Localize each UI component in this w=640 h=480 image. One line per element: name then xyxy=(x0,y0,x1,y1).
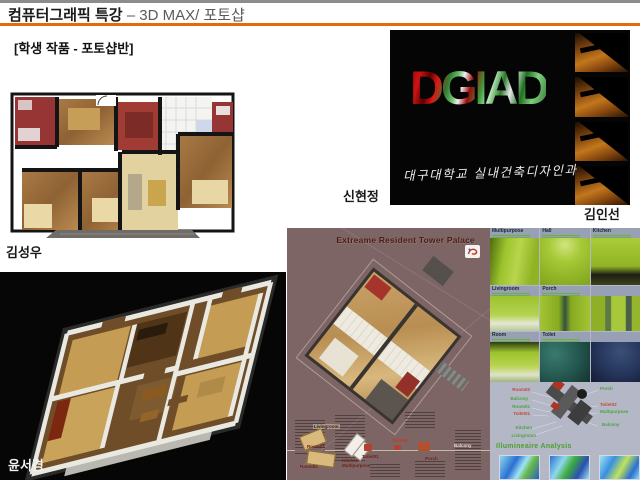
board-cell-toilet2 xyxy=(591,332,640,382)
poster-paragraph xyxy=(370,464,400,478)
interior-photo xyxy=(591,238,640,285)
cell-label: Toilet xyxy=(542,333,589,338)
resident-tower-poster: Extreame Resident Tower Palace Living xyxy=(287,228,490,480)
interior-photo xyxy=(540,342,589,382)
cell-label: Porch xyxy=(542,287,589,292)
lighting-analysis-thumb xyxy=(499,455,540,480)
plan-red-room xyxy=(364,274,391,300)
slide: 컴퓨터그래픽 특강 – 3D MAX/ 포토샵 [학생 작품 - 포토샵반] xyxy=(0,0,640,480)
board-cell-livingroom: Livingroom xyxy=(490,286,539,331)
board-cell-porch: Porch xyxy=(540,286,589,331)
cell-label: Kitchen xyxy=(593,229,640,234)
callout-toilet01: Toilet01 xyxy=(362,454,379,459)
callout-livingroom: Livingroom xyxy=(313,424,340,429)
interior-photo xyxy=(540,296,589,331)
floorplan-2d-image xyxy=(10,88,236,238)
interior-photo xyxy=(540,238,589,285)
dgiad-artwork: DGIAD 대구대학교 실내건축디자인과 xyxy=(390,30,630,205)
rotated-floorplan xyxy=(304,267,461,424)
poster-paragraph xyxy=(415,461,445,477)
poster-title: Extreame Resident Tower Palace xyxy=(336,235,475,245)
green-interior-board: Multipurpose Hall Kitchen Livingroom Por… xyxy=(490,228,640,480)
cell-label: Hall xyxy=(542,229,589,234)
diagram-label-room02: Room02 xyxy=(512,387,530,392)
diagram-label-balcony-l: Balcony xyxy=(510,396,528,401)
interior-photo xyxy=(490,342,539,382)
lighting-analysis-thumb xyxy=(549,455,590,480)
diagram-label-toilet02: Toilet02 xyxy=(600,402,617,407)
plan-tile-room xyxy=(319,338,359,377)
student-name-shinhyunjung: 신현정 xyxy=(343,186,379,205)
slide-title-bold: 컴퓨터그래픽 특강 xyxy=(8,7,123,24)
axonometric-diagram: Room02 Balcony Room01 Toilet01 Kitchen L… xyxy=(490,382,640,442)
iso-floorplan-drawing xyxy=(0,272,286,480)
floorplan-2d-drawing xyxy=(10,88,236,238)
student-name-kimsungwoo: 김성우 xyxy=(6,242,42,261)
slide-subtitle: [학생 작품 - 포토샵반] xyxy=(14,38,134,57)
slide-title-rest: – 3D MAX/ 포토샵 xyxy=(127,7,245,24)
callout-toilet02: Toilet02 xyxy=(392,438,409,443)
callout-porch: Porch xyxy=(425,456,438,461)
furniture-toilet-icon xyxy=(364,444,372,451)
callout-multipurpose: Multipurpose xyxy=(342,463,370,468)
diagram-label-room01: Room01 xyxy=(512,404,530,409)
board-cell-toilet: Toilet xyxy=(540,332,589,382)
diagram-label-balcony-r: Balcony xyxy=(602,422,620,427)
callout-balcony: Balcony xyxy=(454,443,472,448)
filmstrip-frame xyxy=(575,33,628,72)
accent-rule xyxy=(0,23,640,26)
interior-photo xyxy=(591,296,640,331)
poster-paragraph xyxy=(405,412,435,430)
board-cell-kitchen: Kitchen xyxy=(591,228,640,285)
lighting-analysis-thumb xyxy=(599,455,640,480)
callout-room02: Room02 xyxy=(300,464,318,469)
diagram-label-porch: Porch xyxy=(600,386,613,391)
student-name-kiminsun: 김인선 xyxy=(584,204,620,223)
filmstrip-column xyxy=(575,30,628,205)
interior-photo xyxy=(490,238,539,285)
analysis-title: Illumineaire Analysis xyxy=(496,443,572,450)
cell-label: Livingroom xyxy=(492,287,539,292)
diagram-label-kitchen: Kitchen xyxy=(515,425,532,430)
board-cell-hall: Hall xyxy=(540,228,589,285)
diagram-label-multipurpose: Multipurpose xyxy=(600,409,628,414)
poster-logo-icon xyxy=(465,245,480,258)
cell-label: Multipurpose xyxy=(492,229,539,234)
board-cell-multipurpose: Multipurpose xyxy=(490,228,539,285)
analysis-thumbnails xyxy=(490,455,640,480)
dgiad-caption: 대구대학교 실내건축디자인과 xyxy=(403,159,594,185)
poster-paragraph xyxy=(455,430,481,470)
interior-photo xyxy=(490,296,539,331)
filmstrip-frame xyxy=(575,122,628,161)
diagram-label-toilet01: Toilet01 xyxy=(513,411,530,416)
callout-room01: Room01 xyxy=(307,444,325,449)
furniture-porch-icon xyxy=(418,442,430,451)
top-gray-strip xyxy=(0,0,640,3)
interior-photo xyxy=(591,342,640,382)
furniture-toilet-icon xyxy=(394,445,401,450)
student-name-yoonseokyung: 윤서경 xyxy=(8,455,44,474)
dgiad-wordmark: DGIAD xyxy=(410,60,546,115)
diagram-label-livingroom: Livingroom xyxy=(512,433,537,438)
slide-title: 컴퓨터그래픽 특강 – 3D MAX/ 포토샵 xyxy=(8,4,245,25)
cell-label: Room xyxy=(492,333,539,338)
board-cell-corridor xyxy=(591,286,640,331)
board-cell-room: Room xyxy=(490,332,539,382)
filmstrip-frame xyxy=(575,77,628,116)
iso-floorplan-image: 윤서경 xyxy=(0,272,286,480)
callout-kitchen-multipurpose: Kitchen Multipurpose xyxy=(342,458,370,468)
